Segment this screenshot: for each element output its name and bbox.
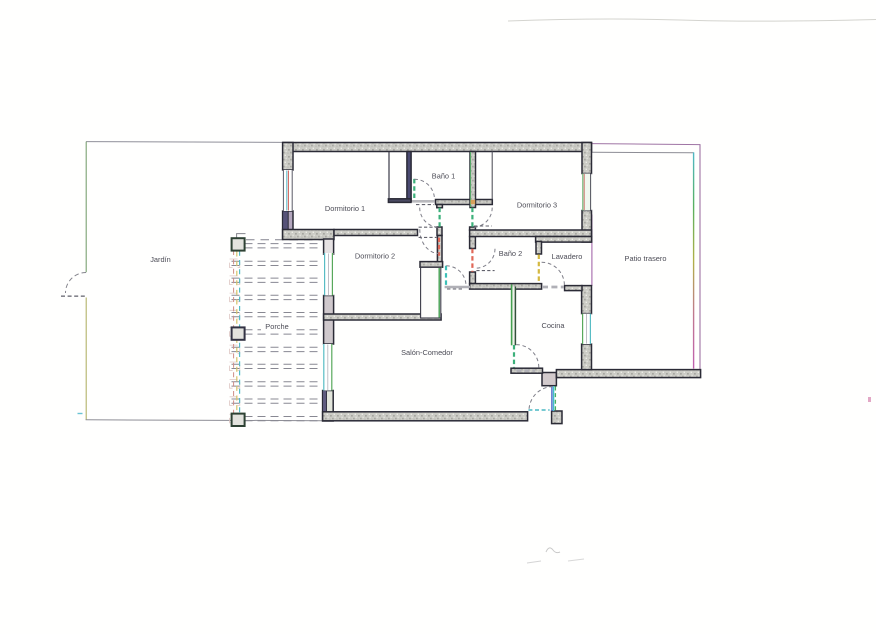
svg-text:Porche: Porche [265, 322, 288, 331]
svg-text:Baño 1: Baño 1 [432, 171, 455, 180]
svg-text:Dormitorio 2: Dormitorio 2 [355, 251, 395, 260]
svg-text:Patio trasero: Patio trasero [625, 254, 667, 263]
svg-text:Dormitorio 1: Dormitorio 1 [325, 204, 365, 213]
svg-text:Cocina: Cocina [541, 321, 565, 330]
svg-text:Salón-Comedor: Salón-Comedor [401, 348, 453, 357]
svg-text:Dormitorio 3: Dormitorio 3 [517, 200, 557, 209]
svg-text:Baño 2: Baño 2 [499, 249, 522, 258]
svg-text:Jardín: Jardín [150, 255, 171, 264]
svg-text:Lavadero: Lavadero [552, 252, 583, 261]
